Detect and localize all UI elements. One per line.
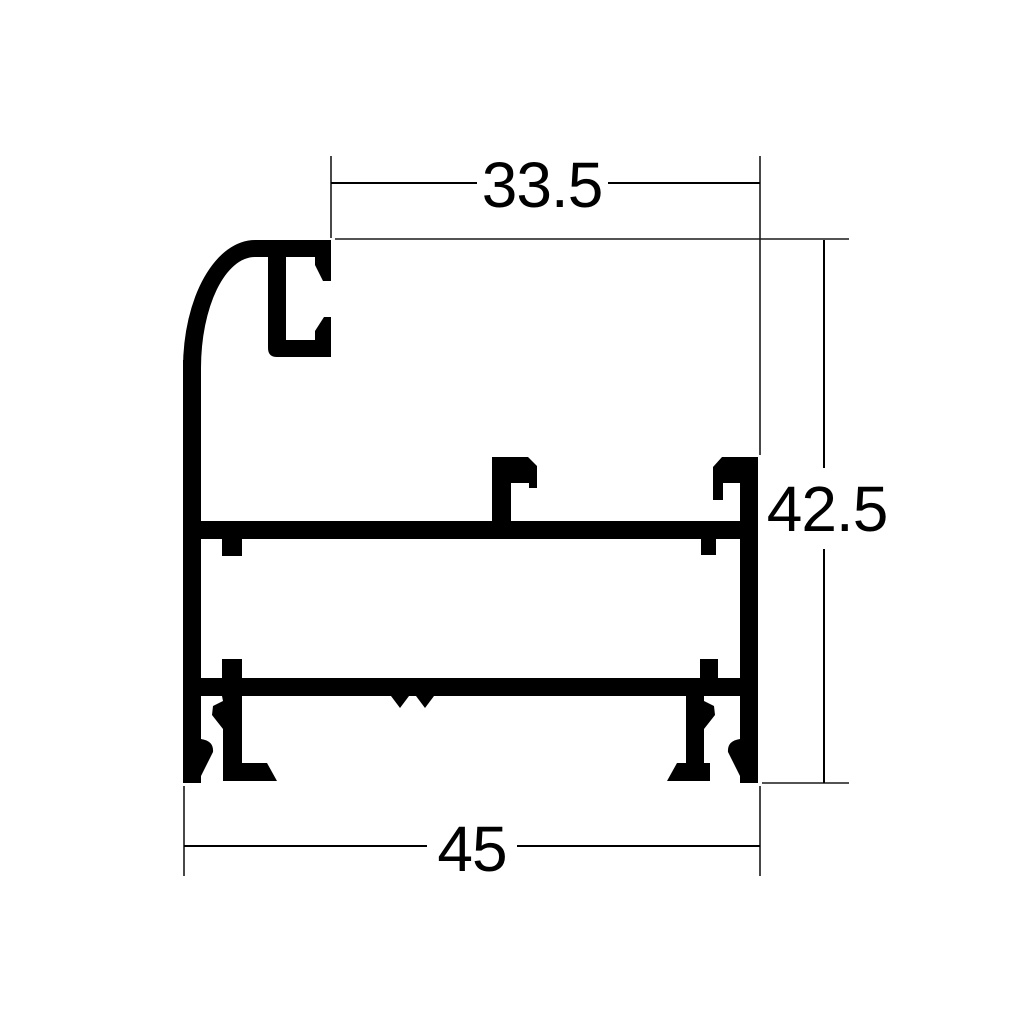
- profile-bottom-leg-right: [667, 696, 715, 781]
- profile-screw-stub-bottom-left: [222, 659, 242, 678]
- profile-bottom-leg-left: [212, 696, 277, 781]
- profile-c-hook-top: [315, 257, 331, 281]
- profile-top-rail: [183, 521, 758, 539]
- profile-screw-stub-top-right: [701, 539, 716, 555]
- profile-left-wall: [183, 360, 213, 783]
- dimension-right-height: 42.5: [335, 239, 887, 783]
- drawing-page: 33.5 42.5 45: [0, 0, 1024, 1024]
- profile-c-hook-bottom: [315, 317, 331, 340]
- dimension-value-bottom-width: 45: [437, 813, 506, 885]
- dimension-value-top-width: 33.5: [482, 149, 603, 221]
- profile-tab-left: [492, 457, 537, 521]
- profile-bottom-rail: [183, 678, 758, 696]
- dimension-bottom-width: 45: [184, 786, 760, 885]
- dimension-top-width: 33.5: [331, 149, 760, 455]
- technical-drawing-canvas: 33.5 42.5 45: [0, 0, 1024, 1024]
- profile-screw-stub-bottom-right: [700, 659, 718, 678]
- dimension-annotations: 33.5 42.5 45: [184, 149, 887, 885]
- profile-right-wall: [728, 457, 758, 783]
- dimension-value-right-height: 42.5: [767, 473, 888, 545]
- profile-gasket-tooth-right: [416, 696, 434, 708]
- profile-gasket-tooth-left: [391, 696, 409, 708]
- profile-body: [183, 240, 758, 783]
- profile-screw-stub-top-left: [222, 539, 242, 556]
